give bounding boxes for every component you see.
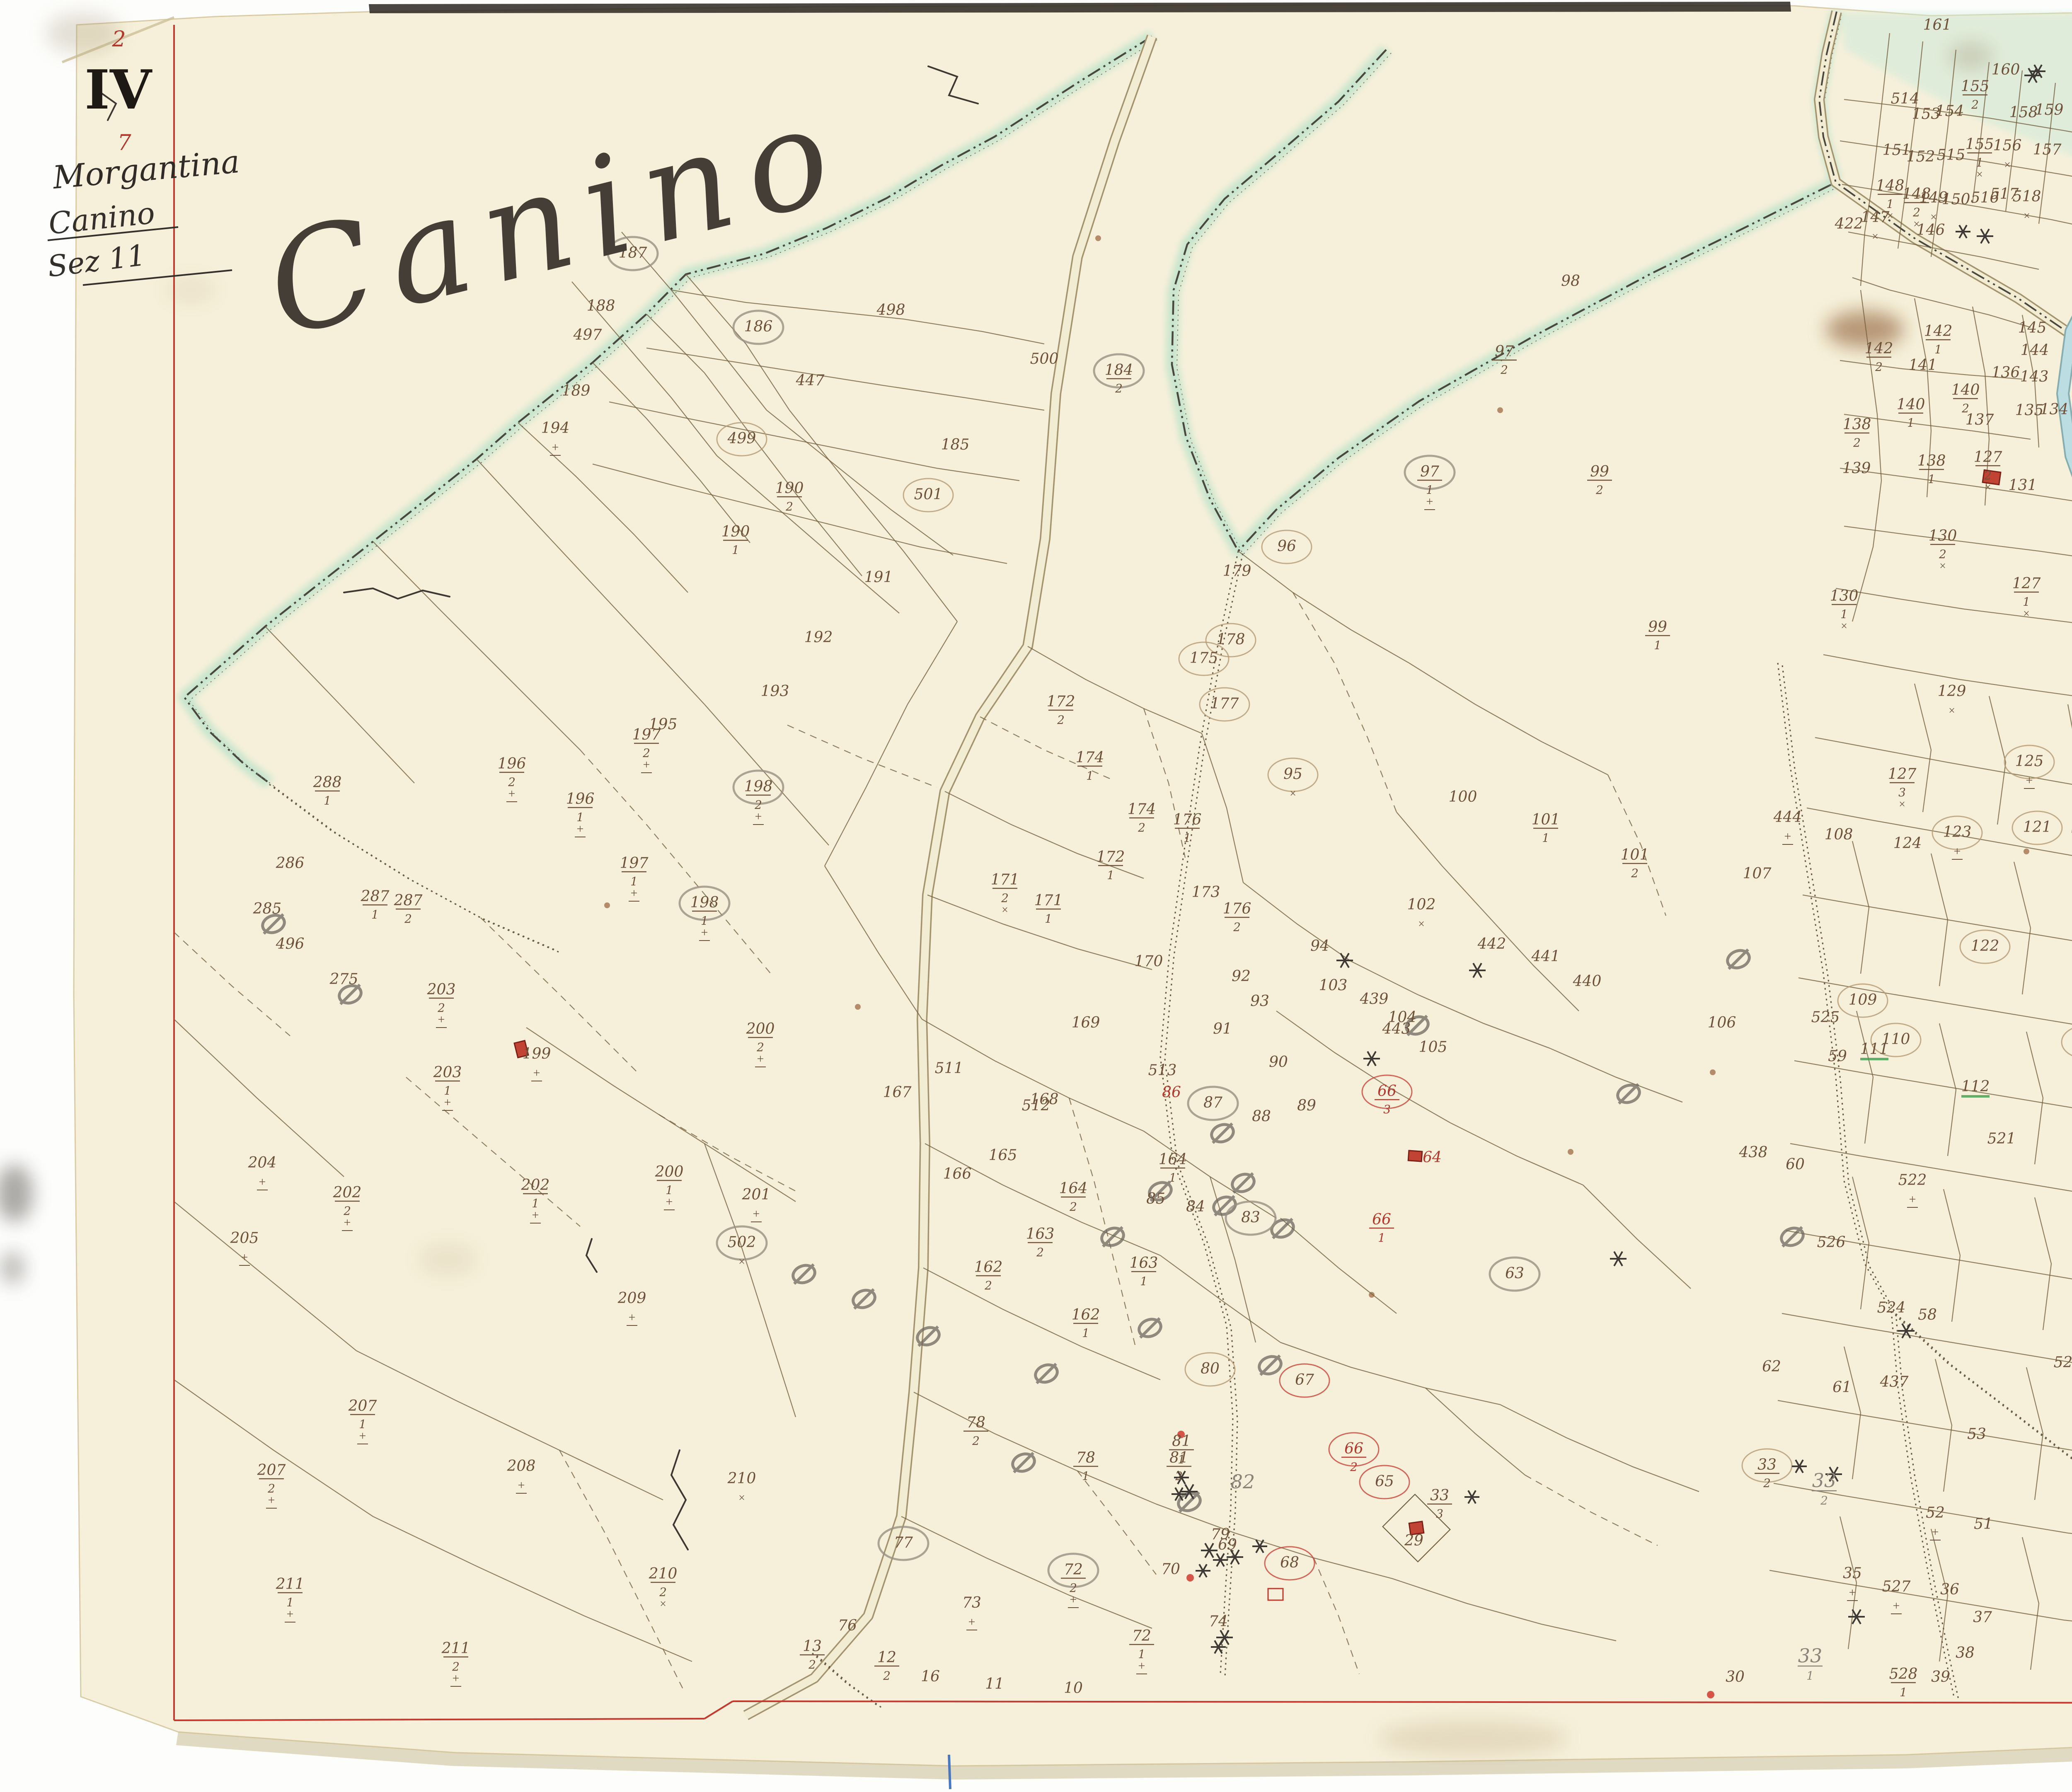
parcel-number: 526 [1817, 1234, 1846, 1251]
parcel-number: 437 [1880, 1374, 1909, 1391]
x-mark: × [1002, 904, 1008, 917]
parcel-number: 146 [1917, 222, 1945, 239]
sheet-number-bottom: 7 [117, 131, 131, 155]
rust-speck [2024, 849, 2029, 854]
parcel-number: 82 [1231, 1470, 1255, 1493]
parcel-number: 142 [1924, 323, 1953, 340]
parcel-number: 174 [1076, 749, 1104, 766]
parcel-label-500: 500 [1030, 351, 1059, 368]
parcel-label-111: 111 [1860, 1041, 1889, 1059]
plus-mark: + [666, 1195, 673, 1209]
map-canvas: 16116015525141531541581591511525151551×1… [0, 0, 2072, 1792]
plus-mark: + [241, 1250, 248, 1264]
parcel-number: 198 [690, 894, 719, 911]
parcel-label-100: 100 [1449, 788, 1477, 805]
parcel-number: 157 [2033, 141, 2062, 158]
plus-mark: + [1954, 844, 1961, 858]
parcel-number: 203 [433, 1064, 462, 1081]
parcel-label-157: 157 [2033, 141, 2062, 158]
parcel-number: 80 [1201, 1360, 1220, 1377]
parcel-number: 106 [1708, 1014, 1736, 1031]
parcel-number: 287 [361, 888, 390, 905]
parcel-number: 439 [1360, 991, 1389, 1008]
parcel-number: 190 [721, 523, 750, 540]
parcel-label-36: 36 [1940, 1581, 1959, 1598]
parcel-label-143: 143 [2020, 368, 2049, 385]
parcel-number: 150 [1942, 191, 1970, 208]
parcel-number: 122 [1971, 938, 1999, 955]
parcel-label-89: 89 [1297, 1097, 1316, 1114]
parcel-label-131: 131 [2009, 477, 2037, 494]
parcel-label-185: 185 [941, 436, 970, 453]
parcel-label-93: 93 [1250, 993, 1269, 1010]
parcel-number: 85 [1146, 1190, 1165, 1207]
parcel-number: 158 [2009, 104, 2038, 121]
x-mark: × [660, 1598, 666, 1611]
parcel-label-447: 447 [796, 372, 825, 389]
parcel-label-76: 76 [838, 1617, 857, 1634]
parcel-number: 29 [1404, 1532, 1423, 1549]
parcel-number: 513 [1148, 1062, 1177, 1079]
parcel-denominator: 2 [1069, 1200, 1077, 1214]
parcel-number: 67 [1295, 1371, 1314, 1388]
parcel-number: 444 [1773, 809, 1802, 826]
parcel-number: 74 [1209, 1613, 1228, 1630]
x-mark: × [1290, 787, 1296, 800]
parcel-number: 135 [2015, 402, 2044, 419]
parcel-number: 179 [1223, 563, 1251, 580]
parcel-number: 196 [566, 791, 595, 808]
parcel-number: 155 [1961, 78, 1990, 95]
parcel-label-91: 91 [1213, 1021, 1232, 1037]
parcel-label-193: 193 [761, 683, 789, 700]
parcel-number: 33 [1812, 1469, 1837, 1492]
parcel-label-442: 442 [1477, 936, 1506, 953]
parcel-number: 500 [1030, 351, 1059, 368]
parcel-label-169: 169 [1072, 1014, 1100, 1031]
parcel-number: 202 [333, 1184, 362, 1201]
parcel-denominator: 1 [1900, 1686, 1907, 1699]
parcel-number: 101 [1532, 811, 1560, 828]
parcel-number: 191 [864, 569, 893, 586]
parcel-label-58: 58 [1918, 1306, 1937, 1323]
parcel-number: 161 [1923, 17, 1952, 34]
parcel-denominator: 1 [1169, 1171, 1176, 1185]
parcel-number: 443 [1382, 1021, 1411, 1037]
parcel-number: 202 [521, 1177, 550, 1194]
parcel-number: 65 [1375, 1473, 1394, 1490]
parcel-denominator: 2 [1853, 436, 1861, 450]
parcel-number: 162 [974, 1259, 1003, 1276]
plus-mark: + [518, 1478, 525, 1492]
parcel-denominator: 1 [1654, 638, 1661, 652]
parcel-number: 154 [1936, 103, 1964, 120]
parcel-number: 72 [1132, 1628, 1151, 1644]
building-footprint [1408, 1151, 1422, 1161]
parcel-number: 78 [1076, 1449, 1095, 1466]
plus-mark: + [508, 787, 516, 800]
parcel-number: 16 [921, 1668, 940, 1685]
plus-mark: + [631, 886, 638, 900]
parcel-number: 103 [1319, 977, 1348, 994]
parcel-number: 78 [966, 1414, 985, 1431]
parcel-number: 64 [1423, 1149, 1442, 1166]
parcel-label-168: 168 [1030, 1091, 1059, 1108]
parcel-number: 288 [313, 774, 342, 791]
parcel-number: 175 [1190, 650, 1218, 667]
parcel-number: 184 [1105, 362, 1133, 379]
parcel-number: 86 [1162, 1084, 1181, 1101]
parcel-number: 172 [1097, 849, 1125, 866]
parcel-denominator: 1 [1107, 868, 1114, 882]
parcel-label-53: 53 [1967, 1426, 1986, 1443]
parcel-label-94: 94 [1310, 938, 1329, 955]
parcel-number: 98 [1561, 273, 1580, 290]
parcel-number: 77 [894, 1534, 913, 1551]
parcel-label-514: 514 [1891, 90, 1920, 107]
parcel-label-152: 152 [1907, 148, 1935, 165]
parcel-label-98: 98 [1561, 273, 1580, 290]
parcel-number: 66 [1344, 1440, 1363, 1457]
rust-speck [1497, 407, 1503, 413]
parcel-label-108: 108 [1825, 826, 1853, 843]
parcel-number: 176 [1223, 900, 1251, 917]
paper-stain [419, 1243, 477, 1276]
parcel-number: 497 [573, 326, 602, 343]
parcel-label-191: 191 [864, 569, 893, 586]
parcel-denominator: 1 [1542, 831, 1549, 845]
parcel-label-51: 51 [1974, 1516, 1993, 1533]
plus-mark: + [757, 1052, 764, 1066]
plus-mark: + [268, 1493, 275, 1507]
x-mark: × [738, 1492, 745, 1504]
parcel-number: 138 [1843, 416, 1871, 433]
parcel-denominator: 3 [1383, 1103, 1391, 1116]
parcel-denominator: 1 [1140, 1274, 1147, 1288]
parcel-number: 210 [649, 1565, 678, 1582]
parcel-denominator: 2 [972, 1434, 980, 1448]
parcel-number: 524 [1877, 1299, 1906, 1316]
parcel-number: 61 [1832, 1379, 1852, 1396]
parcel-number: 422 [1835, 215, 1864, 232]
parcel-number: 94 [1310, 938, 1329, 955]
parcel-label-173: 173 [1192, 884, 1220, 901]
parcel-label-106: 106 [1708, 1014, 1736, 1031]
parcel-number: 141 [1909, 357, 1937, 374]
parcel-number: 140 [1951, 382, 1980, 399]
parcel-number: 131 [2009, 477, 2037, 494]
parcel-number: 30 [1726, 1669, 1745, 1686]
rust-speck [604, 902, 610, 908]
x-mark: × [1899, 798, 1905, 811]
plus-mark: + [755, 810, 762, 823]
parcel-number: 66 [1372, 1211, 1391, 1228]
parcel-denominator: 2 [1175, 1469, 1183, 1483]
parcel-label-61: 61 [1832, 1379, 1852, 1396]
plus-mark: + [287, 1607, 294, 1621]
parcel-number: 105 [1419, 1039, 1447, 1056]
parcel-number: 138 [1917, 452, 1946, 469]
parcel-number: 127 [2012, 575, 2041, 592]
parcel-number: 81 [1172, 1433, 1191, 1450]
parcel-number: 145 [2018, 319, 2047, 336]
parcel-number: 171 [1034, 892, 1063, 909]
parcel-denominator: 2 [1500, 363, 1508, 377]
parcel-number: 121 [2023, 819, 2052, 836]
parcel-label-64: 64 [1423, 1149, 1442, 1166]
parcel-label-525: 525 [1811, 1009, 1840, 1026]
parcel-label-154: 154 [1936, 103, 1964, 120]
parcel-label-124: 124 [1893, 835, 1922, 852]
parcel-number: 97 [1495, 343, 1514, 360]
parcel-number: 177 [1210, 695, 1239, 712]
parcel-label-136: 136 [1992, 364, 2020, 381]
parcel-number: 209 [617, 1290, 646, 1307]
parcel-number: 199 [523, 1045, 551, 1062]
parcel-number: 148 [1876, 177, 1905, 194]
parcel-number: 152 [1907, 148, 1935, 165]
parcel-label-161: 161 [1923, 17, 1952, 34]
parcel-denominator: 1 [1806, 1669, 1814, 1683]
parcel-number: 169 [1072, 1014, 1100, 1031]
parcel-label-112: 112 [1961, 1078, 1990, 1096]
parcel-denominator: 2 [1001, 891, 1009, 905]
parcel-number: 210 [727, 1470, 756, 1487]
plus-mark: + [643, 758, 650, 771]
parcel-number: 176 [1173, 811, 1202, 828]
parcel-number: 84 [1186, 1198, 1205, 1215]
parcel-number: 527 [1882, 1578, 1911, 1595]
parcel-label-497: 497 [573, 326, 602, 343]
parcel-number: 200 [655, 1163, 684, 1180]
parcel-number: 76 [838, 1617, 857, 1634]
parcel-number: 63 [1505, 1265, 1524, 1282]
parcel-label-59: 59 [1828, 1048, 1847, 1065]
parcel-number: 201 [742, 1186, 771, 1203]
parcel-label-134: 134 [2040, 401, 2069, 418]
parcel-number: 95 [1283, 766, 1302, 783]
parcel-denominator: 2 [984, 1279, 992, 1292]
parcel-denominator: 2 [1115, 382, 1123, 395]
x-mark: × [738, 1255, 745, 1268]
parcel-number: 442 [1477, 936, 1506, 953]
plus-mark: + [438, 1013, 445, 1026]
parcel-number: 518 [2013, 188, 2041, 205]
parcel-number: 286 [276, 855, 305, 872]
plus-mark: + [552, 440, 559, 454]
sheet-roman-numeral: IV [85, 58, 152, 121]
parcel-number: 441 [1531, 948, 1560, 965]
parcel-number: 502 [728, 1234, 756, 1251]
paper-stain [1378, 1719, 1569, 1757]
parcel-number: 93 [1250, 993, 1269, 1010]
parcel-label-135: 135 [2015, 402, 2044, 419]
parcel-number: 144 [2021, 342, 2049, 359]
parcel-label-158: 158 [2009, 104, 2038, 121]
parcel-number: 174 [1128, 801, 1156, 818]
rust-speck [855, 1004, 861, 1010]
parcel-number: 165 [989, 1147, 1017, 1164]
parcel-denominator: 2 [659, 1585, 667, 1599]
parcel-label-29: 29 [1404, 1532, 1423, 1549]
parcel-number: 188 [587, 297, 615, 314]
parcel-number: 515 [1937, 147, 1965, 164]
parcel-number: 438 [1739, 1144, 1768, 1161]
parcel-number: 70 [1161, 1561, 1180, 1578]
parcel-denominator: 1 [1086, 769, 1094, 783]
parcel-label-30: 30 [1726, 1669, 1745, 1686]
parcel-label-144: 144 [2021, 342, 2049, 359]
parcel-label-92: 92 [1232, 968, 1251, 985]
parcel-number: 59 [1828, 1048, 1847, 1065]
parcel-number: 275 [329, 971, 358, 988]
parcel-number: 108 [1825, 826, 1853, 843]
parcel-label-285: 285 [253, 900, 282, 917]
parcel-number: 36 [1940, 1581, 1959, 1598]
parcel-number: 525 [1811, 1009, 1840, 1026]
parcel-denominator: 2 [1971, 98, 1979, 111]
parcel-label-159: 159 [2035, 102, 2064, 118]
parcel-label-170: 170 [1135, 953, 1163, 970]
parcel-number: 156 [1993, 137, 2022, 154]
parcel-number: 90 [1269, 1054, 1288, 1071]
x-mark: × [1872, 230, 1878, 243]
plus-mark: + [444, 1096, 451, 1109]
parcel-number: 196 [498, 755, 526, 772]
parcel-number: 66 [1377, 1083, 1397, 1100]
parcel-number: 125 [2015, 753, 2044, 770]
parcel-label-513: 513 [1148, 1062, 1177, 1079]
parcel-label-437: 437 [1880, 1374, 1909, 1391]
parcel-label-82: 82 [1231, 1470, 1255, 1493]
parcel-denominator: 2 [1912, 206, 1920, 219]
parcel-denominator: 2 [404, 912, 412, 926]
plus-mark: + [968, 1615, 975, 1629]
parcel-number: 170 [1135, 953, 1163, 970]
parcel-number: 211 [276, 1576, 305, 1593]
parcel-number: 203 [427, 981, 456, 998]
parcel-number: 496 [276, 936, 305, 953]
plus-mark: + [533, 1066, 540, 1080]
parcel-denominator: 2 [1984, 469, 1992, 482]
parcel-number: 173 [1192, 884, 1220, 901]
parcel-number: 499 [727, 430, 756, 447]
x-mark: × [2023, 607, 2030, 620]
plus-mark: + [2026, 774, 2033, 787]
parcel-label-107: 107 [1743, 865, 1772, 882]
parcel-number: 522 [1898, 1172, 1927, 1189]
parcel-denominator: 1 [1184, 831, 1191, 845]
parcel-number: 207 [348, 1398, 377, 1415]
plus-mark: + [532, 1208, 539, 1222]
plus-mark: + [1070, 1593, 1077, 1606]
parcel-denominator: 2 [1820, 1494, 1828, 1507]
parcel-denominator: 1 [1934, 343, 1942, 356]
parcel-number: 10 [1064, 1680, 1083, 1697]
parcel-label-496: 496 [276, 936, 305, 953]
parcel-number: 168 [1030, 1091, 1059, 1108]
parcel-label-141: 141 [1909, 357, 1937, 374]
parcel-number: 137 [1965, 411, 1994, 428]
rust-speck [1095, 235, 1101, 241]
parcel-denominator: 2 [1350, 1460, 1358, 1474]
parcel-number: 166 [943, 1166, 972, 1183]
parcel-number: 88 [1252, 1108, 1271, 1125]
parcel-number: 99 [1590, 463, 1609, 480]
parcel-label-422: 422 [1835, 215, 1864, 232]
parcel-number: 287 [394, 892, 423, 909]
parcel-number: 140 [1897, 396, 1925, 413]
parcel-number: 167 [883, 1084, 912, 1101]
parcel-label-10: 10 [1064, 1680, 1083, 1697]
parcel-label-167: 167 [883, 1084, 912, 1101]
parcel-number: 521 [1987, 1130, 2016, 1147]
parcel-label-39: 39 [1931, 1669, 1950, 1686]
parcel-label-440: 440 [1573, 973, 1602, 990]
parcel-number: 523 [2054, 1354, 2072, 1371]
parcel-denominator: 3 [1898, 786, 1906, 799]
scanned-cadastral-map: 16116015525141531541581591511525151551×1… [0, 0, 2072, 1792]
parcel-denominator: 1 [371, 908, 379, 921]
parcel-label-515: 515 [1937, 147, 1965, 164]
parcel-number: 528 [1889, 1666, 1918, 1683]
parcel-label-521: 521 [1987, 1130, 2016, 1147]
parcel-denominator: 1 [2023, 595, 2030, 609]
parcel-number: 129 [1938, 683, 1966, 700]
parcel-denominator: 2 [1057, 713, 1065, 727]
x-mark: × [2004, 159, 2011, 172]
parcel-number: 163 [1130, 1255, 1158, 1272]
parcel-number: 68 [1280, 1554, 1299, 1571]
parcel-number: 130 [1830, 588, 1859, 605]
parcel-number: 92 [1232, 968, 1251, 985]
plus-mark: + [1893, 1599, 1900, 1613]
parcel-denominator: 1 [1082, 1469, 1089, 1483]
parcel-number: 99 [1648, 619, 1667, 636]
parcel-denominator: 2 [1233, 920, 1241, 934]
parcel-number: 87 [1203, 1094, 1222, 1111]
red-dot [1707, 1691, 1714, 1698]
parcel-number: 37 [1973, 1609, 1992, 1626]
parcel-number: 205 [230, 1230, 259, 1247]
parcel-denominator: 1 [1378, 1231, 1385, 1245]
parcel-label-523: 523 [2054, 1354, 2072, 1371]
parcel-number: 178 [1217, 631, 1245, 648]
parcel-number: 83 [1241, 1209, 1260, 1226]
parcel-label-11: 11 [985, 1676, 1004, 1693]
x-mark: × [1985, 481, 1991, 494]
parcel-number: 162 [1072, 1306, 1100, 1323]
parcel-denominator: 2 [1631, 866, 1639, 880]
parcel-label-86: 86 [1162, 1084, 1181, 1101]
parcel-label-84: 84 [1186, 1198, 1205, 1215]
parcel-number: 186 [744, 318, 773, 335]
parcel-label-189: 189 [562, 382, 591, 399]
parcel-number: 33 [1430, 1487, 1449, 1504]
parcel-number: 194 [541, 420, 570, 437]
parcel-number: 39 [1931, 1669, 1950, 1686]
parcel-number: 501 [914, 486, 943, 503]
parcel-number: 101 [1621, 846, 1649, 863]
paper-stain [0, 1251, 25, 1284]
parcel-number: 164 [1059, 1180, 1088, 1197]
blue-registration-tick [949, 1755, 950, 1789]
parcel-number: 62 [1762, 1358, 1781, 1375]
parcel-number: 127 [1888, 766, 1917, 783]
parcel-number: 127 [1974, 449, 2002, 466]
parcel-number: 211 [441, 1640, 470, 1657]
plus-mark: + [1426, 495, 1433, 508]
